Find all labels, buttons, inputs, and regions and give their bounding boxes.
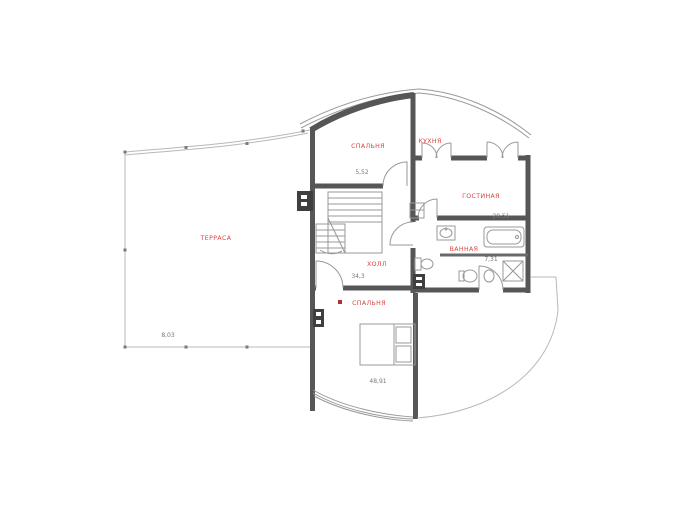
area-terrace: 8,03: [161, 332, 175, 339]
area-bedroom1: 5,52: [355, 169, 369, 176]
bidet-icon: [459, 270, 477, 282]
staircase: [316, 192, 382, 254]
chimney-shaft-hall: [297, 191, 313, 211]
room-label-bedroom2: СПАЛЬНЯ: [352, 300, 386, 307]
room-label-bath: ВАННАЯ: [450, 246, 479, 253]
room-label-hall: ХОЛЛ: [367, 261, 387, 268]
floor-plan-canvas: ТЕРРАСА СПАЛЬНЯ КУХНЯ ГОСТИНАЯ ВАННАЯ ХО…: [0, 0, 700, 525]
area-bath: 7,31: [484, 256, 498, 263]
bedroom2-label-marker: [338, 300, 342, 304]
lower-deck-outline: [417, 277, 558, 418]
bed-icon: [360, 324, 415, 365]
room-label-terrace: ТЕРРАСА: [200, 235, 232, 242]
area-living: 20,51: [492, 213, 509, 220]
room-label-living: ГОСТИНАЯ: [462, 193, 500, 200]
bath-sink-icon: [437, 226, 455, 240]
toilet-icon: [415, 258, 433, 270]
area-hall: 34,3: [351, 273, 365, 280]
duct-shaft-corridor: [413, 274, 425, 289]
room-label-bedroom1: СПАЛЬНЯ: [351, 143, 385, 150]
pedestal-basin-icon: [484, 270, 494, 282]
floor-plan-drawing: ТЕРРАСА СПАЛЬНЯ КУХНЯ ГОСТИНАЯ ВАННАЯ ХО…: [0, 0, 700, 525]
room-label-kitchen: КУХНЯ: [418, 138, 441, 145]
chimney-shaft-bedroom: [313, 309, 324, 327]
shower-icon: [503, 261, 523, 281]
area-dimensions: 8,03 5,52 20,51 7,31 34,3 48,91: [161, 169, 509, 385]
bathtub-icon: [484, 227, 524, 247]
curved-window-band: [313, 390, 413, 421]
area-bedroom2: 48,91: [369, 378, 386, 385]
